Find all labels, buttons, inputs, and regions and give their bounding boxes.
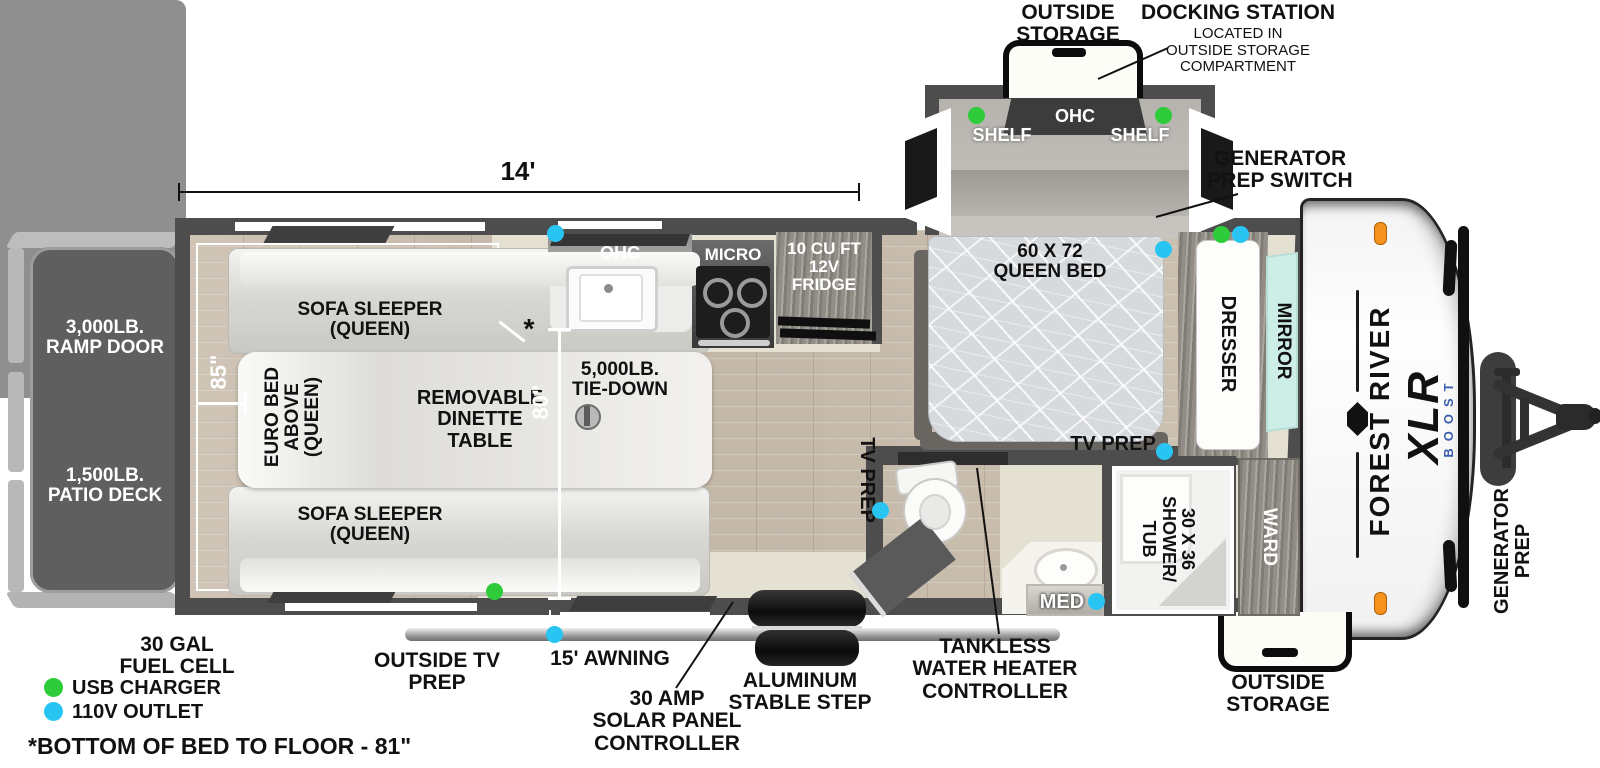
dim-14ft-label: 14' [478, 158, 558, 186]
ramp-door-bevel-bottom [5, 592, 182, 608]
speed-line-top [1356, 290, 1359, 392]
slide-window-left [905, 128, 937, 210]
bed-slide-shelf-band [939, 170, 1201, 216]
usb-charger-dot-slide-right [1155, 107, 1172, 124]
outlet-dot-tv-bath [872, 502, 889, 519]
marker-light-top [1374, 222, 1387, 245]
vanity-faucet [1060, 564, 1067, 571]
bed-ohc-label: OHC [1035, 107, 1115, 126]
legend-usb-label: USB CHARGER [72, 678, 221, 699]
tie-down-anchor-bar [584, 406, 590, 426]
hitch-ball [1588, 408, 1600, 424]
sofa-bottom-label: SOFA SLEEPER(QUEEN) [270, 505, 470, 546]
shelf-left-label: SHELF [952, 126, 1052, 145]
jack-handle [1494, 368, 1520, 376]
kitchen-sink-basin [579, 274, 643, 322]
sofa-top-label: SOFA SLEEPER(QUEEN) [270, 300, 470, 341]
ramp-door-label: 3,000LB.RAMP DOOR [38, 318, 172, 359]
usb-charger-dot-dresser [1213, 226, 1230, 243]
dim-14ft-tick-left [178, 183, 180, 201]
dim-85-tick [244, 392, 247, 414]
entry-step-divider [752, 626, 862, 629]
dim-80-tick-bottom [548, 597, 571, 600]
dim-80-tick-top [548, 328, 571, 331]
burner-bottom [720, 308, 750, 338]
model-logo: XLR BOOST [1401, 347, 1459, 487]
entry-step-lower [755, 630, 859, 666]
brand-name: FOREST RIVER [1363, 271, 1397, 571]
burner-left [703, 278, 733, 308]
tankless-label: TANKLESSWATER HEATERCONTROLLER [905, 636, 1085, 703]
outside-tv-bracket [569, 596, 718, 611]
dim-85-label: 85" [208, 342, 230, 402]
outside-storage-bottom-label: OUTSIDESTORAGE [1198, 672, 1358, 717]
outside-storage-bottom-handle [1262, 648, 1298, 657]
kitchen-faucet [604, 284, 613, 293]
outlet-dot-dresser [1232, 226, 1249, 243]
usb-charger-dot-slide-left [968, 107, 985, 124]
model-trim: BOOST [1442, 376, 1456, 457]
window-top-kitchen [558, 221, 662, 229]
marker-light-bottom [1374, 592, 1387, 615]
shower-label: 30 X 36SHOWER/TUB [1137, 479, 1199, 599]
asterisk-marker: * [514, 314, 544, 344]
sofa-bottom-backrest [240, 558, 700, 592]
window-bottom-entry [560, 612, 710, 618]
ramp-door-bevel-top [5, 232, 182, 248]
awning-label: 15' AWNING [540, 648, 680, 670]
legend-usb-dot [44, 678, 63, 697]
ramp-door-panel [30, 247, 180, 593]
micro-label: MICRO [692, 246, 774, 264]
kitchen-ohc-label: OHC [570, 244, 670, 263]
usb-charger-dot-garage [486, 583, 503, 600]
roof-vent-top [263, 226, 394, 243]
mirror-label: MIRROR [1272, 266, 1294, 416]
patio-deck-label: 1,500LB.PATIO DECK [38, 466, 172, 507]
oven-handle [698, 340, 770, 346]
outside-tv-prep-label: OUTSIDE TVPREP [357, 650, 517, 695]
dim-14ft-tick-right [858, 183, 860, 201]
toilet-bowl-inner [919, 494, 951, 530]
step-label: ALUMINUMSTABLE STEP [710, 670, 890, 715]
generator-prep-label: GENERATORPREP [1490, 466, 1536, 636]
tv-prep-bedroom-label: TV PREP [1058, 434, 1168, 455]
outside-storage-top-handle [1052, 48, 1086, 57]
burner-right [737, 278, 767, 308]
outlet-dot-med [1088, 593, 1105, 610]
outlet-dot-tv-bedroom [1156, 443, 1173, 460]
floorplan-canvas: 3,000LB.RAMP DOOR 1,500LB.PATIO DECK OHC… [0, 0, 1600, 768]
tie-down-label: 5,000LB.TIE-DOWN [540, 360, 700, 401]
docking-station-label: DOCKING STATION LOCATED IN OUTSIDE STORA… [1132, 2, 1344, 75]
wall-rear [175, 218, 190, 615]
outlet-dot-bed [1155, 241, 1172, 258]
outside-storage-bottom-compartment [1218, 612, 1352, 672]
dim-85-line [196, 402, 246, 405]
generator-prep-switch-label: GENERATORPREP SWITCH [1200, 148, 1360, 193]
ramp-door-bevel-left3 [8, 480, 24, 592]
queen-bed-label: 60 X 72QUEEN BED [950, 242, 1150, 283]
outlet-dot-awning [546, 626, 563, 643]
wardrobe-label: WARD [1258, 477, 1280, 597]
front-cap-edge [1458, 226, 1469, 608]
entry-step-upper [748, 590, 866, 627]
aframe-cross-bar [1520, 398, 1529, 442]
bed-note: *BOTTOM OF BED TO FLOOR - 81" [28, 734, 411, 759]
model-name: XLR [1404, 370, 1444, 464]
dim-14ft-line [178, 191, 860, 193]
euro-bed-label: EURO BEDABOVE(QUEEN) [258, 342, 328, 492]
ramp-door-bevel-left2 [8, 372, 24, 472]
speed-line-bottom [1356, 452, 1359, 558]
window-bottom-garage [285, 603, 477, 611]
shelf-right-label: SHELF [1090, 126, 1190, 145]
fuel-cell-label: 30 GALFUEL CELL [97, 634, 257, 679]
outside-storage-top-label: OUTSIDESTORAGE [988, 2, 1148, 47]
legend-outlet-label: 110V OUTLET [72, 702, 203, 723]
ramp-door-bevel-left1 [8, 248, 24, 363]
outlet-dot-kitchen [547, 225, 564, 242]
legend-outlet-dot [44, 702, 63, 721]
fridge-label: 10 CU FT12VFRIDGE [776, 240, 872, 295]
tv-prep-bath-label: TV PREP [855, 426, 877, 534]
dresser-label: DRESSER [1216, 259, 1238, 429]
